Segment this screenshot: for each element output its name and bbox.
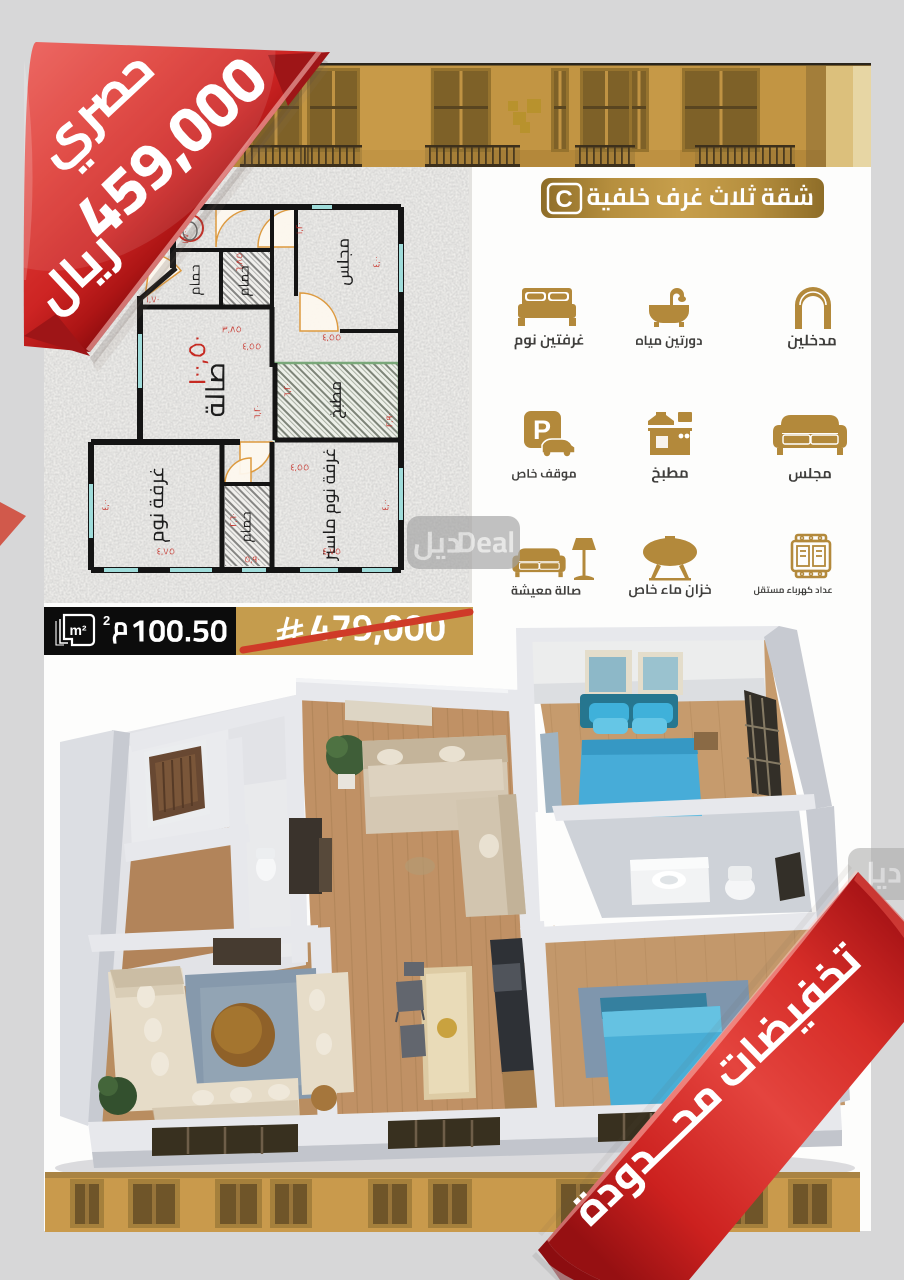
svg-text:m²: m² — [69, 622, 86, 638]
svg-text:C: C — [555, 186, 572, 213]
svg-text:2: 2 — [103, 613, 110, 628]
